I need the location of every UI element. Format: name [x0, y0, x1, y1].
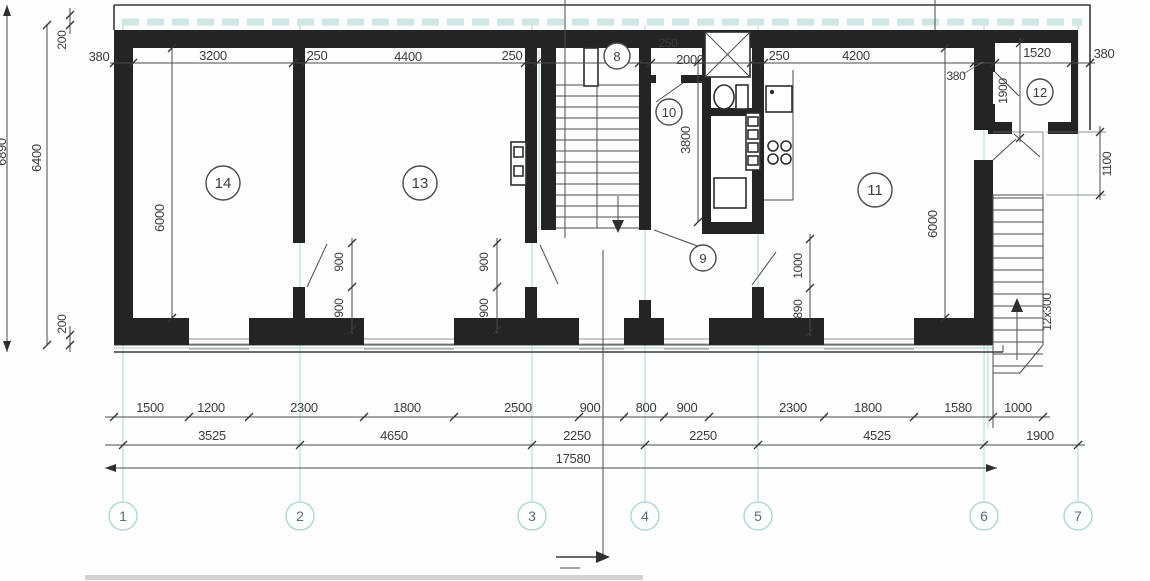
dim-total-label: 17580	[556, 451, 591, 466]
toilet-icon	[714, 85, 748, 109]
dim-label: 200	[55, 314, 69, 334]
dim-label: 1000	[1004, 400, 1032, 415]
dim-label: 1800	[393, 400, 421, 415]
axis-number: 4	[641, 508, 649, 524]
room-number: 9	[699, 251, 706, 266]
duct-column	[746, 113, 760, 170]
dim-label: 3525	[198, 428, 226, 443]
stair-note-label: 12x300	[1040, 293, 1054, 331]
dim-label: 380	[1094, 46, 1115, 61]
dim-label: 250	[502, 48, 523, 63]
dim-label: 6000	[152, 204, 167, 232]
room-number: 10	[662, 105, 676, 120]
axis-number: 6	[980, 508, 988, 524]
room-number: 11	[867, 182, 883, 199]
axis-bubbles: 1 2 3 4 5 6 7	[109, 502, 1092, 530]
dim-label: 2300	[779, 400, 807, 415]
dim-label: 1900	[1026, 428, 1054, 443]
dim-label: 1800	[854, 400, 882, 415]
dim-label: 1500	[136, 400, 164, 415]
scan-artifact	[85, 575, 643, 580]
dim-label: 900	[332, 298, 346, 318]
dim-label: 200	[55, 30, 69, 50]
electrical-panel	[511, 142, 526, 185]
dim-label: 900	[677, 400, 698, 415]
axis-number: 5	[754, 508, 762, 524]
dim-label: 890	[791, 299, 805, 319]
axis-number: 1	[119, 508, 127, 524]
dim-label: 3800	[678, 126, 693, 154]
dim-label: 1580	[944, 400, 972, 415]
dim-label: 3200	[199, 48, 227, 63]
dimension-labels: 380 3200 250 4400 250 250 2000 250 4200 …	[0, 30, 1114, 466]
dim-label: 6890	[0, 138, 9, 166]
dim-label: 6400	[29, 144, 44, 172]
dim-label: 900	[332, 252, 346, 272]
floor-plan-sheet: 380 3200 250 4400 250 250 2000 250 4200 …	[0, 0, 1150, 581]
room-number: 13	[412, 175, 429, 192]
dim-label: 900	[580, 400, 601, 415]
axis-grid-lines	[114, 22, 1082, 502]
floor-plan-drawing: 380 3200 250 4400 250 250 2000 250 4200 …	[0, 0, 1150, 581]
dim-label: 2500	[504, 400, 532, 415]
dim-label: 1100	[1100, 151, 1114, 176]
dim-label: 800	[636, 400, 657, 415]
axis-number: 3	[528, 508, 536, 524]
stair-down-arrow-icon	[612, 220, 624, 233]
dim-label: 380	[946, 69, 966, 83]
dim-label: 4650	[380, 428, 408, 443]
dim-label: 2250	[563, 428, 591, 443]
axis-number: 2	[296, 508, 304, 524]
dim-label: 1900	[996, 78, 1010, 104]
building-envelope	[114, 5, 1090, 352]
dim-label: 4200	[842, 48, 870, 63]
cabinet-icon	[714, 178, 746, 208]
dim-label: 6000	[925, 210, 940, 238]
staircase-external	[993, 132, 1043, 428]
dim-label: 250	[658, 36, 678, 50]
dim-label: 2300	[290, 400, 318, 415]
vent-shaft	[705, 32, 750, 77]
dim-label: 1200	[197, 400, 225, 415]
dim-label: 2000	[676, 52, 704, 67]
sink-icon	[766, 86, 792, 112]
room-number: 12	[1033, 85, 1047, 100]
dim-label: 2250	[689, 428, 717, 443]
room-number: 8	[613, 49, 620, 64]
dim-label: 1000	[791, 253, 805, 279]
dim-label: 900	[477, 252, 491, 272]
dim-label: 380	[89, 49, 110, 64]
axis-number: 7	[1074, 508, 1082, 524]
room-number: 14	[215, 175, 232, 192]
dim-label: 250	[769, 48, 790, 63]
staircase-main	[556, 48, 639, 233]
dim-label: 4525	[863, 428, 891, 443]
dim-label: 1520	[1023, 45, 1051, 60]
dim-label: 900	[477, 298, 491, 318]
dim-label: 250	[307, 48, 328, 63]
stair-up-arrow-icon	[1011, 298, 1023, 312]
stove-icon	[768, 141, 791, 164]
dim-label: 4400	[394, 49, 422, 64]
